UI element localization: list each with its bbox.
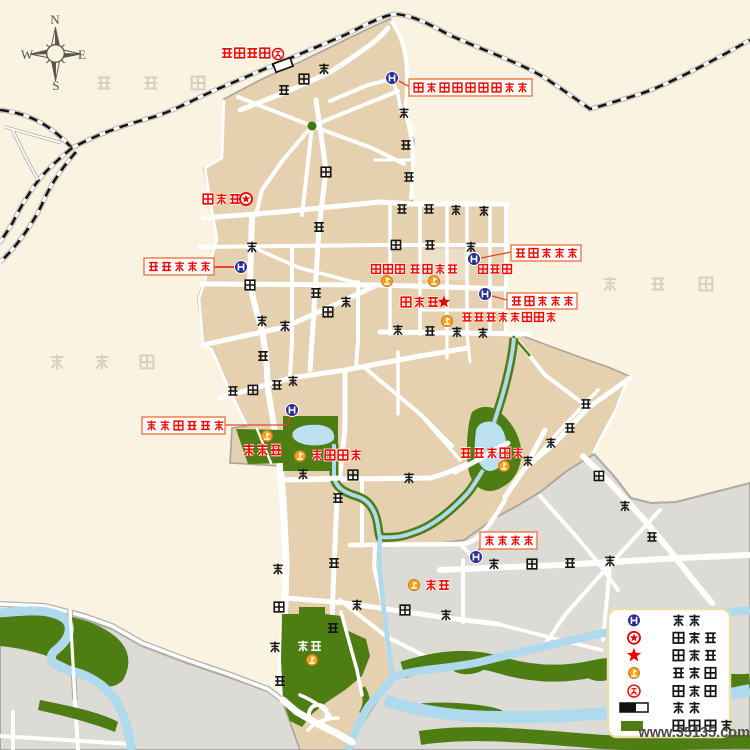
svg-text:www.35135.com: www.35135.com <box>638 725 750 741</box>
svg-text:S: S <box>52 78 59 93</box>
svg-text:N: N <box>50 12 60 27</box>
svg-text:W: W <box>21 47 34 62</box>
svg-text:E: E <box>78 47 86 62</box>
